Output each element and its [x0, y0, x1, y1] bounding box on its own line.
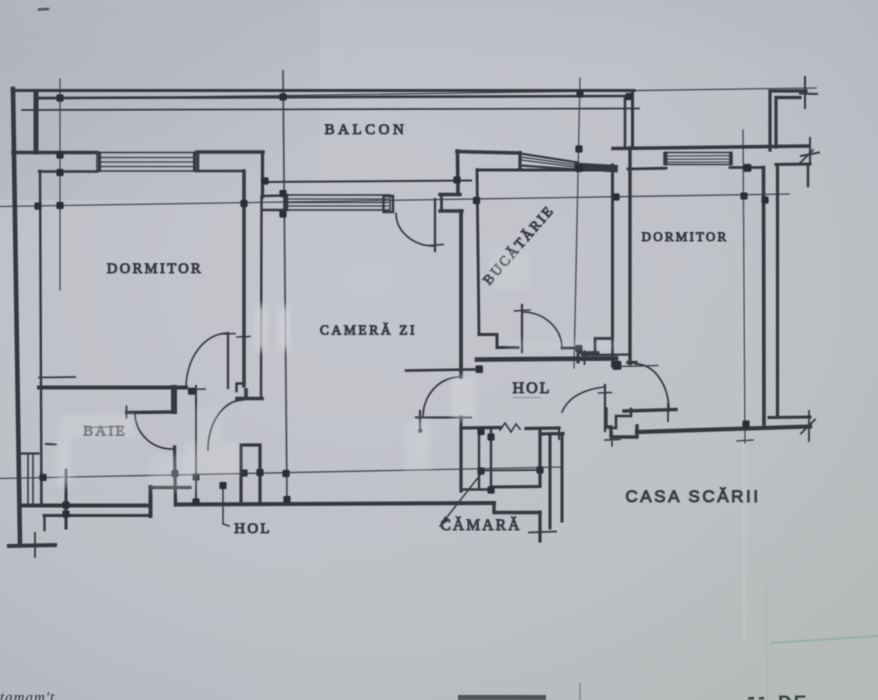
svg-text:DORMITOR: DORMITOR	[642, 229, 729, 244]
svg-text:CĂMARĂ: CĂMARĂ	[440, 517, 521, 534]
svg-text:tamam'ţ: tamam'ţ	[0, 690, 55, 700]
svg-text:HOL: HOL	[513, 380, 552, 397]
svg-text:BALCON: BALCON	[325, 122, 408, 138]
svg-text:DE: DE	[778, 693, 808, 700]
svg-text:CAMERĂ ZI: CAMERĂ ZI	[320, 323, 417, 338]
svg-text:CASA SCĂRII: CASA SCĂRII	[625, 487, 760, 506]
svg-text:DORMITOR: DORMITOR	[107, 261, 203, 277]
svg-text:HOL: HOL	[234, 521, 271, 537]
